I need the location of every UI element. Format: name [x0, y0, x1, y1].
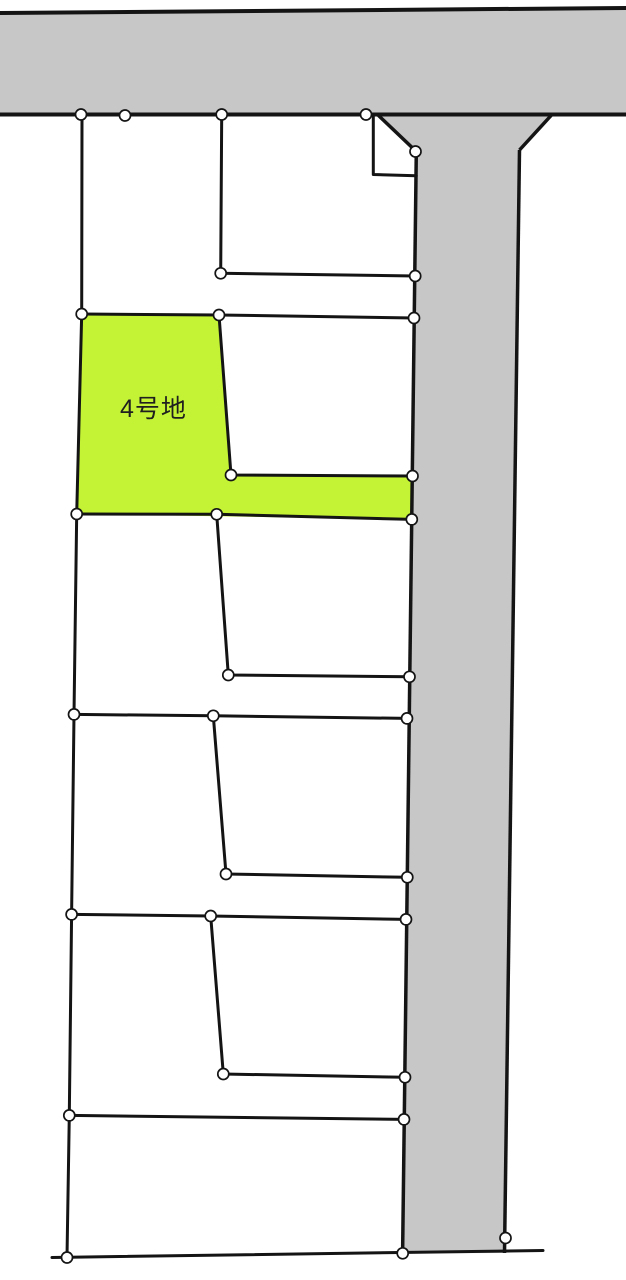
survey-point-marker	[226, 470, 237, 481]
map-canvas: 4号地	[0, 0, 626, 1280]
survey-point-marker	[208, 710, 219, 721]
lot-subdivision-map: 4号地	[0, 0, 626, 1280]
map-background	[0, 0, 626, 1280]
survey-point-marker	[397, 1248, 408, 1259]
survey-point-marker	[218, 1069, 229, 1080]
survey-point-marker	[400, 1072, 411, 1083]
survey-point-marker	[404, 671, 415, 682]
survey-point-marker	[410, 271, 421, 282]
survey-point-marker	[120, 110, 131, 121]
survey-point-marker	[71, 509, 82, 520]
survey-point-marker	[76, 309, 87, 320]
survey-point-marker	[211, 509, 222, 520]
top-road-surface	[0, 8, 626, 115]
survey-point-marker	[205, 911, 216, 922]
survey-point-marker	[69, 709, 80, 720]
survey-point-marker	[214, 310, 225, 321]
survey-point-marker	[223, 670, 234, 681]
survey-point-marker	[215, 268, 226, 279]
survey-point-marker	[62, 1252, 73, 1263]
survey-point-marker	[402, 713, 413, 724]
survey-point-marker	[401, 914, 412, 925]
lot-4-label: 4号地	[120, 395, 187, 423]
survey-point-marker	[66, 909, 77, 920]
survey-point-marker	[500, 1233, 511, 1244]
survey-point-marker	[409, 313, 420, 324]
survey-point-marker	[76, 109, 87, 120]
survey-point-marker	[399, 1114, 410, 1125]
survey-point-marker	[361, 109, 372, 120]
survey-point-marker	[410, 146, 421, 157]
survey-point-marker	[407, 471, 418, 482]
survey-point-marker	[402, 872, 413, 883]
survey-point-marker	[221, 869, 232, 880]
survey-point-marker	[216, 109, 227, 120]
survey-point-marker	[64, 1110, 75, 1121]
survey-point-marker	[406, 514, 417, 525]
